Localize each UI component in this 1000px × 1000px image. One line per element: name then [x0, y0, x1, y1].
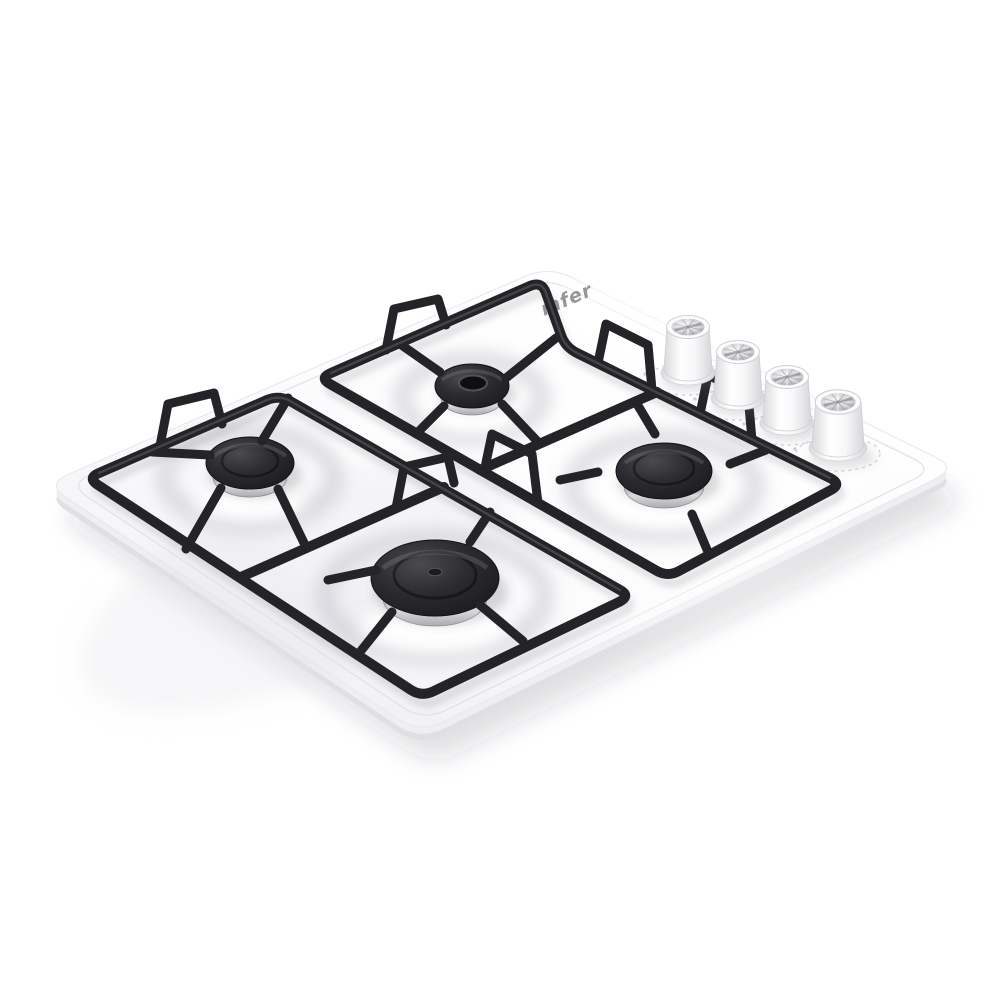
- product-photo-gas-hob: mfer: [0, 0, 1000, 1000]
- control-knob-1: [661, 316, 715, 386]
- burner-front-right: [616, 443, 712, 508]
- gas-hob-illustration: mfer: [0, 0, 1000, 1000]
- control-knob-3: [760, 366, 814, 436]
- control-knob-2: [711, 341, 765, 411]
- control-knob-4: [809, 390, 867, 461]
